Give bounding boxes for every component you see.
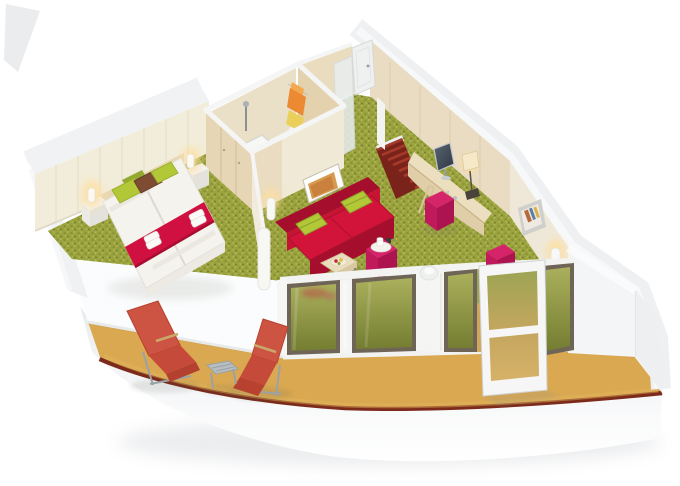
glass-door-1: [287, 280, 340, 355]
entry-mirror: [377, 97, 385, 150]
shower-head: [243, 101, 249, 107]
glass-door-3: [444, 269, 477, 352]
glass-door-2: [352, 274, 416, 353]
sheer-curtain: [344, 282, 346, 350]
sofa-reflection: [301, 288, 327, 298]
cabin-render-page: [0, 0, 680, 486]
cabin-entry-door: [352, 40, 375, 95]
cabin-3d-floorplan: [0, 0, 680, 486]
window-pillar: [416, 266, 444, 352]
glass-door-5: [542, 263, 574, 356]
divider-rounded-end: [258, 228, 270, 290]
door-handle: [367, 65, 370, 68]
bedside-lamp-left: [82, 180, 102, 208]
